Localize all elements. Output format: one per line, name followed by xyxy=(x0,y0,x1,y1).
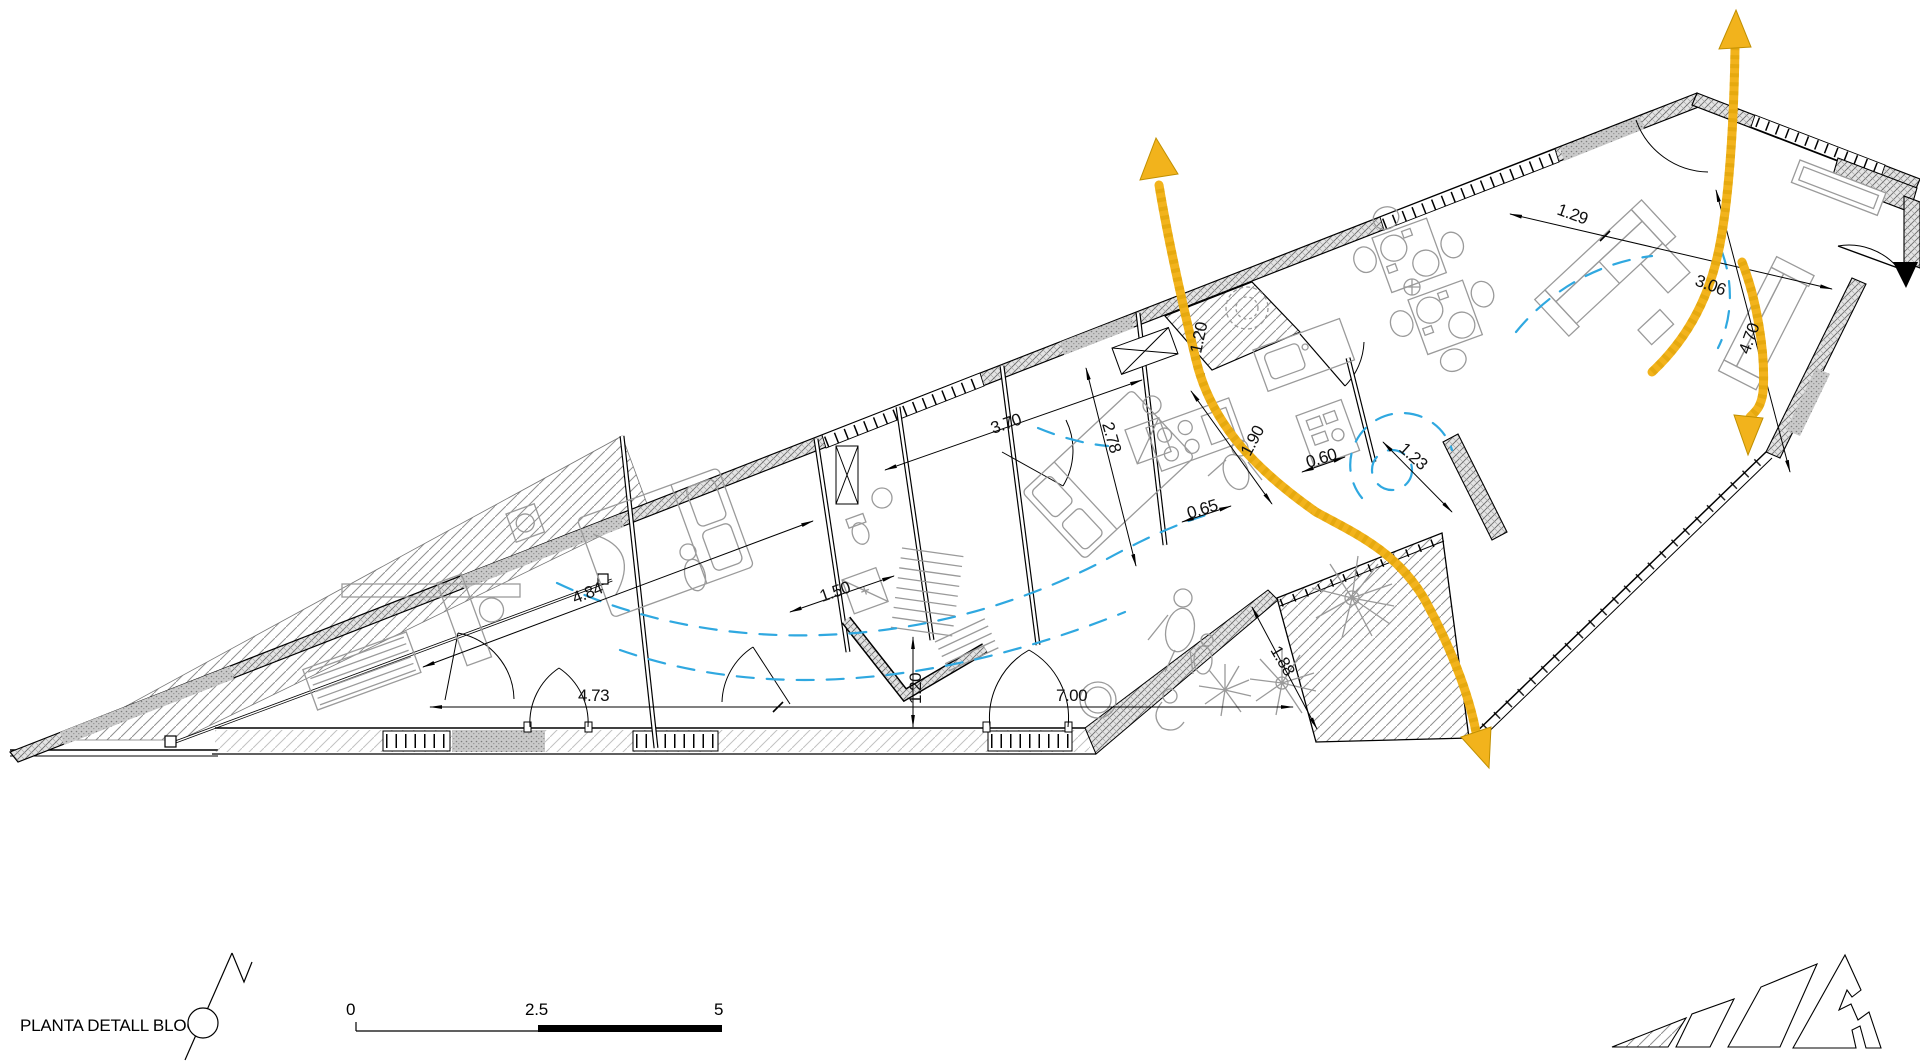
shelf-slats xyxy=(891,548,964,636)
dimension-label: 4.73 xyxy=(578,686,609,705)
dimension-label: 1.23 xyxy=(1395,439,1431,474)
table-cross-symbol xyxy=(1404,279,1420,295)
entry-door xyxy=(1838,245,1898,268)
coffee-table xyxy=(1638,310,1674,345)
person-figure xyxy=(680,544,709,593)
scale-label-25: 2.5 xyxy=(525,1000,548,1019)
floorplan-drawing: 4.84 4.73 1.50 3.70 2.78 1.20 1.90 0.60 … xyxy=(0,0,1920,1063)
dimension-label: 1.90 xyxy=(1237,422,1268,458)
scale-label-5: 5 xyxy=(714,1000,723,1019)
bed-double-2 xyxy=(1022,390,1194,560)
dimension-label: 4.84 xyxy=(569,578,605,607)
northeast-wing xyxy=(1636,93,1920,458)
dimension-label: 7.00 xyxy=(1056,686,1087,705)
terrace-west xyxy=(10,436,650,756)
dimension-label: 0.65 xyxy=(1185,496,1220,523)
scale-label-0: 0 xyxy=(346,1000,355,1019)
dimension-label: 3.06 xyxy=(1693,271,1729,300)
spiky-plant xyxy=(1199,664,1251,716)
shelf-slats xyxy=(935,619,998,671)
floorplan-sheet: 4.84 4.73 1.50 3.70 2.78 1.20 1.90 0.60 … xyxy=(0,0,1920,1063)
dimension-label: 1.29 xyxy=(1555,200,1591,229)
dimension-label: 0.60 xyxy=(1304,445,1339,472)
site-key-logo xyxy=(1612,955,1881,1048)
dimension-label: 1.20 xyxy=(906,673,925,704)
ventilation-arrows xyxy=(1140,10,1764,768)
plan-title: PLANTA DETALL BLOC 1 xyxy=(20,1016,212,1035)
north-arrow-icon xyxy=(185,953,252,1060)
dimension-label: 2.78 xyxy=(1098,420,1125,455)
dimension-lines xyxy=(423,190,1832,729)
dimension-label: 3.70 xyxy=(988,410,1024,438)
entrance-triangle-marker xyxy=(1893,262,1918,288)
southeast-glass-facade xyxy=(1468,452,1772,746)
sofa-living xyxy=(1535,200,1700,362)
legend: PLANTA DETALL BLOC 1 0 2.5 5 xyxy=(20,953,1881,1060)
closet xyxy=(836,446,858,504)
furniture xyxy=(342,186,1814,730)
dimension-label: 1.50 xyxy=(817,578,853,606)
scale-bar: 0 2.5 5 xyxy=(346,1000,723,1032)
